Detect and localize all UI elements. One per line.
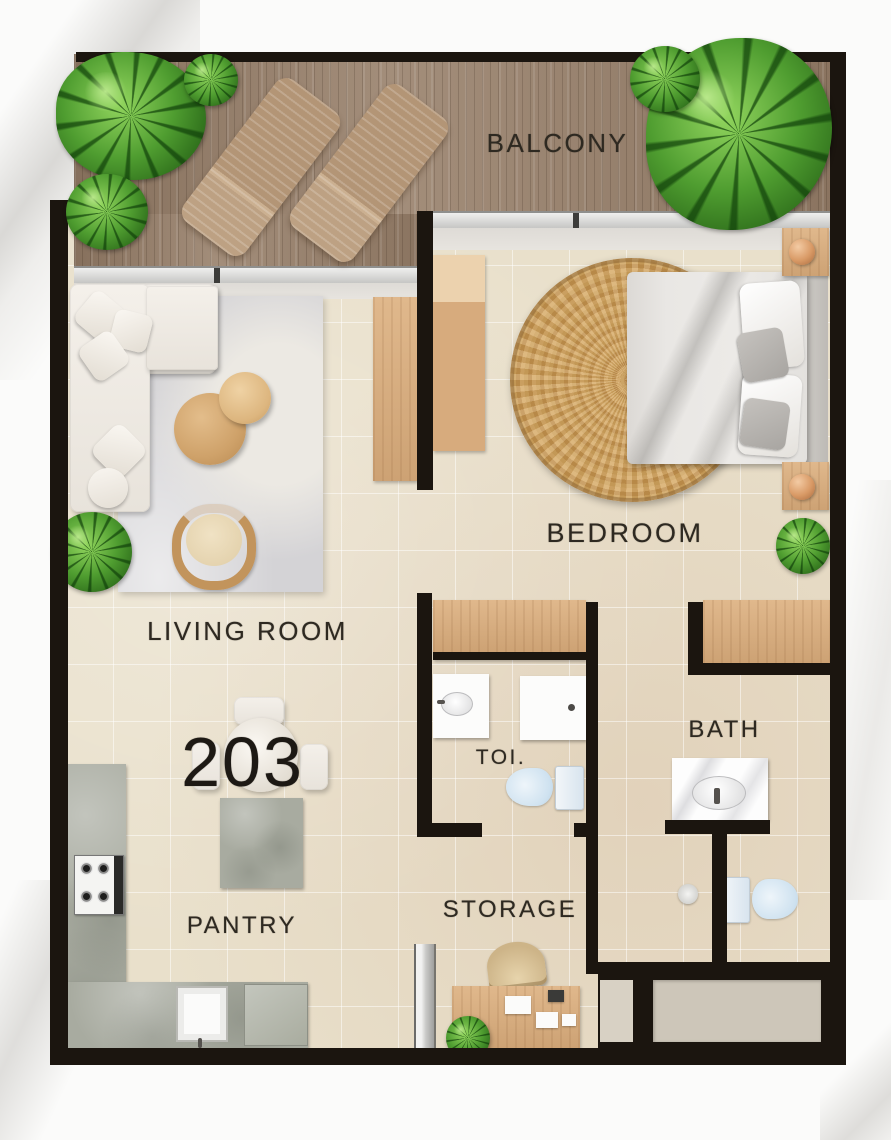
- washer-unit: [520, 676, 586, 740]
- bedroom-dresser: [433, 255, 485, 451]
- bath-toilet: [722, 877, 798, 921]
- wall-toilet-left: [417, 593, 432, 837]
- label-unit-number: 203: [165, 722, 320, 802]
- burner-icon: [80, 862, 93, 875]
- burner-icon: [97, 890, 110, 903]
- wall-divider: [417, 211, 433, 490]
- desk-papers: [536, 1012, 558, 1028]
- label-living-room: LIVING ROOM: [145, 616, 350, 647]
- label-balcony: BALCONY: [455, 128, 660, 159]
- marble-streak: [845, 480, 891, 900]
- dishwasher: [244, 984, 308, 1046]
- wall-bath-bottom: [586, 962, 846, 974]
- nightstand-lamp: [789, 239, 815, 265]
- toilet-bowl: [506, 768, 553, 806]
- toilet-paper-icon: [678, 884, 698, 904]
- sink-faucet: [198, 1038, 202, 1048]
- closet-cell-small: [600, 980, 633, 1042]
- kitchen-island: [220, 798, 303, 888]
- washbasin-bowl: [441, 692, 473, 716]
- burner-icon: [97, 862, 110, 875]
- toilet-room-closet: [433, 600, 586, 660]
- wall-right: [830, 52, 846, 1065]
- balcony-plant-small: [184, 54, 238, 106]
- wall-toilet-right: [586, 602, 598, 962]
- wall-left: [50, 200, 68, 1065]
- coffee-pouf-small: [219, 372, 271, 424]
- armchair-cushion: [186, 514, 242, 566]
- accent-pillow: [739, 397, 791, 451]
- toilet-tank: [555, 766, 584, 810]
- wall-bath-closet-bottom: [688, 663, 830, 675]
- label-pantry: PANTRY: [182, 912, 302, 940]
- nightstand-lamp: [789, 474, 815, 500]
- tv-console: [373, 297, 417, 481]
- label-storage: STORAGE: [440, 896, 580, 924]
- basin-faucet: [437, 700, 445, 704]
- label-bath: BATH: [682, 716, 767, 744]
- wall-bath-stem: [712, 834, 727, 962]
- storage-door: [414, 944, 436, 1050]
- wall-toilet-bottom: [417, 823, 482, 837]
- desk-papers: [562, 1014, 576, 1026]
- balcony-plant-right-small: [630, 46, 700, 112]
- balcony-palm-left: [56, 52, 206, 180]
- bedroom-plant: [776, 518, 830, 574]
- vanity-counter-edge: [665, 820, 770, 834]
- desk-papers: [505, 996, 531, 1014]
- closet-cell: [653, 980, 821, 1042]
- balcony-plant-left: [66, 174, 148, 250]
- label-bedroom: BEDROOM: [540, 518, 710, 549]
- stove-cooktop: [74, 855, 124, 915]
- wall-toilet-bottom: [574, 823, 598, 837]
- toilet-bowl: [752, 879, 798, 919]
- sofa-ottoman: [146, 286, 218, 370]
- vanity-faucet: [714, 788, 720, 804]
- label-toilet: TOI.: [466, 746, 536, 770]
- bath-closet: [703, 600, 830, 663]
- desk-item: [548, 990, 564, 1002]
- door-threshold: [433, 228, 830, 250]
- stove-panel: [114, 856, 123, 914]
- kitchen-sink: [176, 986, 228, 1042]
- toilet-fixture: [506, 766, 584, 808]
- burner-icon: [80, 890, 93, 903]
- washer-knob-icon: [568, 704, 575, 711]
- accent-pillow: [736, 326, 790, 383]
- bed-headboard: [804, 266, 828, 470]
